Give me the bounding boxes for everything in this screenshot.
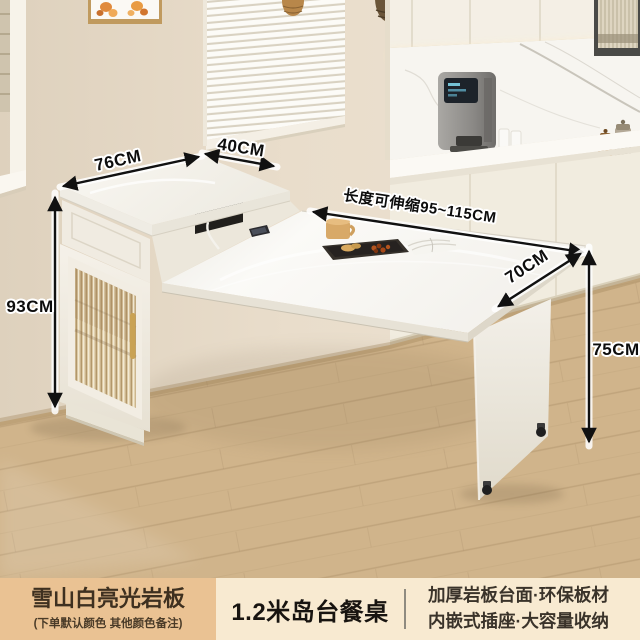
feature-line: 内嵌式插座·大容量收纳 [428, 610, 640, 634]
features-box: 加厚岩板台面·环保板材 内嵌式插座·大容量收纳 [406, 578, 640, 640]
product-title: 1.2米岛台餐桌 [231, 592, 388, 627]
product-title-box: 1.2米岛台餐桌 [216, 578, 404, 640]
feature-line: 加厚岩板台面·环保板材 [428, 584, 640, 608]
door-handle [130, 313, 136, 359]
finish-badge: 雪山白亮光岩板 (下单默认颜色 其他颜色备注) [0, 578, 216, 640]
finish-name: 雪山白亮光岩板 [31, 587, 185, 611]
wall-art [88, 0, 162, 24]
dim-label-cabinet-height: 93CM [6, 297, 53, 317]
scene-illustration [0, 0, 640, 578]
framed-fluted-panel [594, 0, 640, 56]
mug [326, 218, 354, 239]
right-window-blinds [203, 0, 345, 153]
water-dispenser [438, 72, 496, 152]
finish-note: (下单默认颜色 其他颜色备注) [34, 615, 183, 631]
product-image: 76CM 40CM 93CM 长度可伸缩95~115CM 70CM 75CM 雪… [0, 0, 640, 640]
dim-label-table-height: 75CM [592, 340, 639, 360]
info-bar: 雪山白亮光岩板 (下单默认颜色 其他颜色备注) 1.2米岛台餐桌 加厚岩板台面·… [0, 578, 640, 640]
